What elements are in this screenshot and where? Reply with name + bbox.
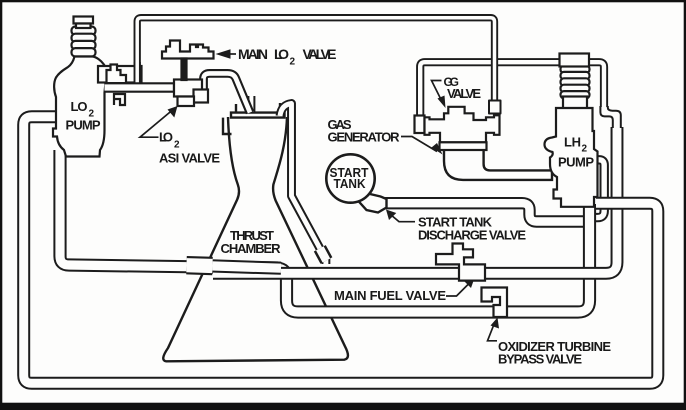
- svg-text:TANK: TANK: [334, 177, 366, 191]
- svg-text:LO: LO: [71, 99, 88, 114]
- svg-text:DISCHARGE VALVE: DISCHARGE VALVE: [418, 228, 526, 243]
- svg-text:BYPASS VALVE: BYPASS VALVE: [498, 352, 582, 367]
- svg-text:2: 2: [582, 144, 588, 155]
- svg-text:MAIN FUEL VALVE: MAIN FUEL VALVE: [334, 288, 446, 303]
- svg-text:LO: LO: [274, 46, 289, 62]
- svg-text:ASI VALVE: ASI VALVE: [159, 151, 220, 166]
- svg-text:PUMP: PUMP: [558, 155, 594, 170]
- svg-text:LO: LO: [159, 130, 173, 145]
- svg-text:GENERATOR: GENERATOR: [328, 130, 401, 145]
- svg-text:MAIN: MAIN: [238, 46, 268, 62]
- svg-text:2: 2: [174, 140, 180, 151]
- svg-text:2: 2: [290, 57, 296, 68]
- svg-text:CHAMBER: CHAMBER: [221, 241, 282, 256]
- svg-text:LH: LH: [564, 135, 581, 150]
- svg-text:VALVE: VALVE: [447, 86, 481, 101]
- svg-text:VALVE: VALVE: [303, 46, 337, 62]
- svg-text:PUMP: PUMP: [66, 118, 101, 133]
